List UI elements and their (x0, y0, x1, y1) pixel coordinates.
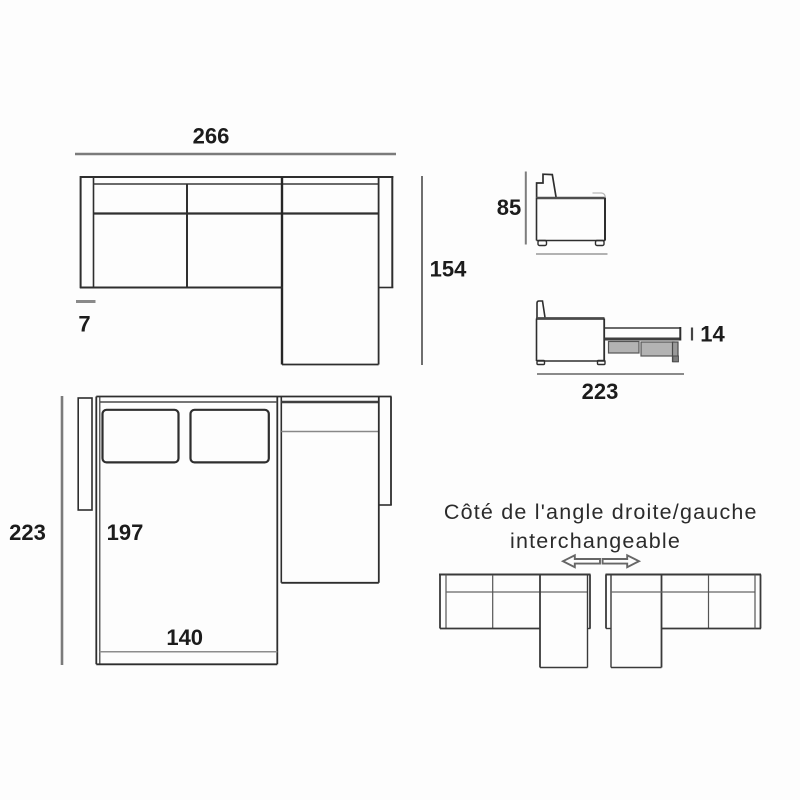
svg-text:223: 223 (9, 520, 46, 545)
svg-text:154: 154 (430, 257, 467, 282)
svg-text:266: 266 (193, 124, 230, 149)
svg-text:7: 7 (78, 312, 90, 337)
svg-text:Côté de l'angle droite/gauche: Côté de l'angle droite/gauche (444, 500, 758, 524)
svg-text:197: 197 (107, 520, 144, 545)
svg-text:140: 140 (166, 625, 203, 650)
svg-text:14: 14 (700, 322, 725, 347)
svg-text:223: 223 (582, 379, 619, 404)
svg-text:85: 85 (497, 195, 521, 220)
svg-text:interchangeable: interchangeable (510, 529, 681, 553)
